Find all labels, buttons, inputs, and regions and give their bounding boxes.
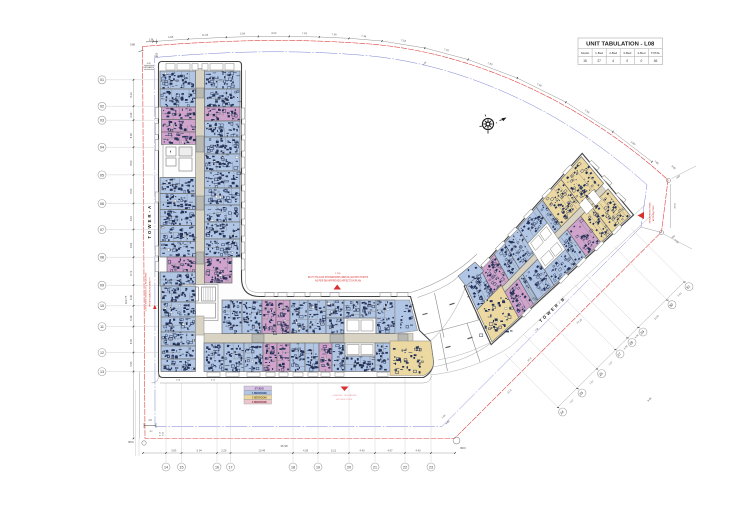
svg-text:17: 17 bbox=[229, 465, 233, 469]
svg-text:4.28: 4.28 bbox=[303, 448, 309, 452]
svg-text:02: 02 bbox=[100, 105, 104, 109]
svg-text:TOTAL: TOTAL bbox=[651, 51, 661, 55]
svg-text:1.125: 1.125 bbox=[335, 273, 341, 275]
svg-text:04: 04 bbox=[100, 146, 104, 150]
svg-text:6.48: 6.48 bbox=[129, 315, 133, 321]
svg-text:1.36: 1.36 bbox=[149, 39, 154, 41]
svg-text:3.00 M WIDE SIKKA N.O.C REQUIR: 3.00 M WIDE SIKKA N.O.C REQUIRED bbox=[145, 272, 148, 311]
svg-text:1 BEDROOM: 1 BEDROOM bbox=[252, 392, 266, 395]
svg-text:19: 19 bbox=[316, 465, 320, 469]
svg-text:LOADING / UNLOADING: LOADING / UNLOADING bbox=[332, 394, 357, 397]
svg-text:4.49: 4.49 bbox=[129, 112, 133, 118]
svg-text:3-Bed: 3-Bed bbox=[623, 51, 631, 55]
svg-text:18: 18 bbox=[291, 465, 295, 469]
svg-text:8.63: 8.63 bbox=[129, 160, 133, 166]
svg-text:2 BEDROOM: 2 BEDROOM bbox=[252, 396, 266, 399]
svg-text:Studio: Studio bbox=[581, 51, 590, 55]
svg-text:13: 13 bbox=[100, 370, 104, 374]
svg-text:PLOT 373-1234 SHOWROOMS (RETAI: PLOT 373-1234 SHOWROOMS (RETAIL) ENTRY P… bbox=[308, 276, 369, 279]
svg-text:7.36: 7.36 bbox=[361, 34, 367, 38]
svg-text:3 BEDROOM: 3 BEDROOM bbox=[252, 401, 266, 404]
svg-text:8.05: 8.05 bbox=[129, 339, 133, 345]
svg-text:FROM DUBAI MUNICIPALITY: FROM DUBAI MUNICIPALITY bbox=[149, 277, 152, 307]
svg-text:15: 15 bbox=[583, 59, 587, 63]
svg-text:7.60: 7.60 bbox=[332, 32, 338, 36]
svg-text:0: 0 bbox=[641, 59, 643, 63]
svg-text:05: 05 bbox=[100, 173, 104, 177]
svg-text:2.29: 2.29 bbox=[221, 448, 227, 452]
svg-text:AS PER DM APPROVED AFFECTION P: AS PER DM APPROVED AFFECTION PLAN bbox=[315, 280, 361, 283]
svg-text:1.50: 1.50 bbox=[154, 56, 158, 58]
svg-text:0.98: 0.98 bbox=[130, 45, 135, 47]
svg-text:22: 22 bbox=[403, 465, 407, 469]
svg-text:8.10: 8.10 bbox=[129, 215, 133, 221]
svg-text:15: 15 bbox=[180, 465, 184, 469]
svg-text:4: 4 bbox=[612, 59, 614, 63]
svg-text:5.98: 5.98 bbox=[168, 35, 174, 39]
svg-text:6.04: 6.04 bbox=[197, 448, 203, 452]
svg-text:R8.0: R8.0 bbox=[460, 447, 466, 450]
svg-text:5.21: 5.21 bbox=[331, 448, 337, 452]
svg-text:4-Bed: 4-Bed bbox=[637, 51, 645, 55]
svg-text:ENTRANCE: ENTRANCE bbox=[144, 66, 155, 69]
svg-text:10.49: 10.49 bbox=[259, 448, 266, 452]
svg-text:8.02: 8.02 bbox=[271, 31, 277, 35]
svg-text:ACCESS POINT: ACCESS POINT bbox=[652, 204, 655, 221]
svg-text:0: 0 bbox=[626, 59, 628, 63]
svg-text:4.40: 4.40 bbox=[415, 448, 421, 452]
svg-text:11.04: 11.04 bbox=[202, 33, 209, 37]
svg-text:ACCESS POINT: ACCESS POINT bbox=[336, 398, 353, 401]
svg-text:1-Bed: 1-Bed bbox=[595, 51, 603, 55]
svg-text:5.99: 5.99 bbox=[240, 31, 246, 35]
svg-text:46: 46 bbox=[654, 59, 658, 63]
svg-text:03: 03 bbox=[100, 119, 104, 123]
svg-text:4.97: 4.97 bbox=[387, 448, 393, 452]
svg-text:16: 16 bbox=[215, 465, 219, 469]
svg-text:R5.0: R5.0 bbox=[128, 441, 134, 444]
svg-text:20: 20 bbox=[347, 465, 351, 469]
svg-text:5.95: 5.95 bbox=[129, 361, 133, 367]
svg-text:12: 12 bbox=[100, 351, 104, 355]
svg-text:8.72: 8.72 bbox=[129, 270, 133, 276]
svg-text:UNIT TABULATION - L08: UNIT TABULATION - L08 bbox=[586, 42, 655, 48]
svg-text:01: 01 bbox=[100, 78, 104, 82]
svg-text:36.98: 36.98 bbox=[281, 444, 288, 448]
svg-text:06: 06 bbox=[100, 202, 104, 206]
svg-text:6.40: 6.40 bbox=[129, 294, 133, 300]
svg-text:8.38: 8.38 bbox=[129, 133, 133, 139]
svg-text:◐: ◐ bbox=[169, 149, 172, 155]
svg-text:10: 10 bbox=[100, 304, 104, 308]
svg-text:SIKKA PEDESTRIAN: SIKKA PEDESTRIAN bbox=[649, 202, 652, 223]
svg-text:3.83: 3.83 bbox=[171, 448, 177, 452]
svg-text:T O W E R - A: T O W E R - A bbox=[147, 205, 152, 238]
svg-text:07: 07 bbox=[100, 228, 104, 232]
svg-text:4.40: 4.40 bbox=[359, 448, 365, 452]
svg-text:21: 21 bbox=[373, 465, 377, 469]
svg-text:2-Bed: 2-Bed bbox=[609, 51, 617, 55]
svg-text:8.63: 8.63 bbox=[129, 242, 133, 248]
svg-text:STUDIO: STUDIO bbox=[255, 387, 264, 390]
svg-text:8.90: 8.90 bbox=[129, 188, 133, 194]
svg-text:8.23: 8.23 bbox=[129, 92, 133, 98]
svg-text:7.93: 7.93 bbox=[302, 31, 308, 35]
svg-text:14: 14 bbox=[164, 465, 168, 469]
svg-text:11: 11 bbox=[100, 325, 104, 329]
svg-text:08: 08 bbox=[100, 256, 104, 260]
svg-text:27: 27 bbox=[597, 59, 601, 63]
svg-text:23: 23 bbox=[429, 465, 433, 469]
svg-text:09: 09 bbox=[100, 284, 104, 288]
svg-text:102.75: 102.75 bbox=[124, 295, 128, 304]
